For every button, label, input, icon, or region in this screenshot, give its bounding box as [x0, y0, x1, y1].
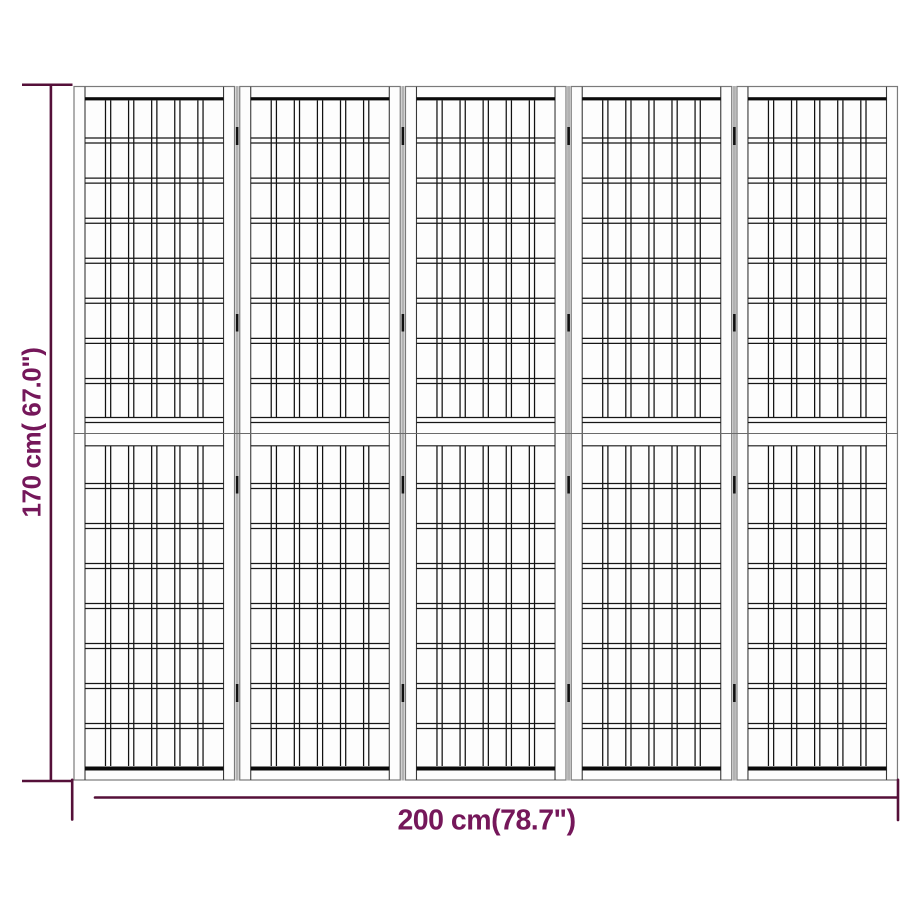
svg-text:170 cm( 67.0"): 170 cm( 67.0") [17, 347, 47, 517]
svg-text:200 cm(78.7"): 200 cm(78.7") [397, 805, 575, 837]
